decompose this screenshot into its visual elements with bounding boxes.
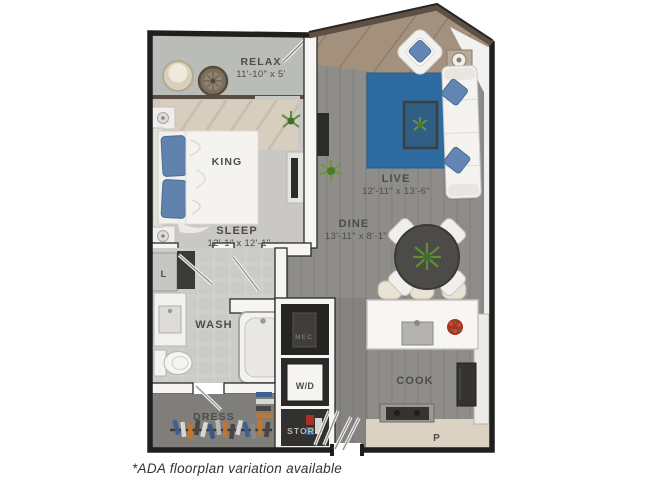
pantry-floor <box>366 419 490 449</box>
floorplan-svg: RELAX 11'-10" x 5' KING SLEEP 12'-1" x 1… <box>0 0 650 490</box>
lamp-dot <box>161 116 165 120</box>
king-bed <box>153 128 258 233</box>
bathroom-wash <box>150 248 287 383</box>
burner <box>414 410 420 416</box>
stor-label: STOR <box>287 426 315 436</box>
door-jamb <box>330 444 334 456</box>
king-label: KING <box>212 156 243 168</box>
bedroom-tv <box>291 158 298 198</box>
duvet <box>186 131 258 224</box>
mec-label: MEC <box>295 334 313 341</box>
balcony-relax <box>149 35 313 102</box>
patio-table <box>199 67 227 95</box>
mechanical-unit <box>293 313 316 347</box>
wall-segment <box>224 383 281 394</box>
burner <box>394 410 400 416</box>
dine-dims: 13'-11" x 8'-1" <box>325 231 387 242</box>
stove <box>386 407 429 420</box>
dine-label: DINE <box>339 218 370 230</box>
live-dims: 12'-11" x 13'-6" <box>362 186 430 197</box>
bedroom-living-wall <box>304 36 317 248</box>
linen-label: L <box>161 269 168 280</box>
relax-dims: 11'-10" x 5' <box>236 69 286 80</box>
island-sink <box>402 320 433 345</box>
pillow <box>161 179 187 218</box>
floorplan-image: RELAX 11'-10" x 5' KING SLEEP 12'-1" x 1… <box>0 0 650 490</box>
sofa <box>440 65 482 198</box>
footnote: *ADA floorplan variation available <box>132 461 342 476</box>
tv-living <box>317 113 329 156</box>
faucet <box>414 320 420 326</box>
hall-shadow <box>330 298 368 449</box>
sleep-label: SLEEP <box>216 225 258 237</box>
pillow <box>161 135 187 176</box>
wash-label: WASH <box>195 319 232 331</box>
tub-faucet <box>260 318 266 324</box>
fruit-bowl <box>447 319 463 335</box>
wd-label: W/D <box>296 381 315 391</box>
sleep-dims: 12'-1" x 12'-1" <box>208 238 271 249</box>
cook-label: COOK <box>396 375 433 387</box>
lamp-dot <box>457 58 462 63</box>
lounge-chair-cushion <box>169 64 188 83</box>
lamp-dot <box>161 234 165 238</box>
relax-label: RELAX <box>240 56 281 68</box>
door-jamb <box>360 444 364 456</box>
wall-segment <box>150 383 193 394</box>
dining-set <box>387 217 468 298</box>
pantry-label: P <box>433 433 441 444</box>
dress-label: DRESS <box>193 411 235 423</box>
vanity-sink <box>154 293 186 346</box>
live-label: LIVE <box>382 173 411 185</box>
toilet <box>154 350 192 376</box>
